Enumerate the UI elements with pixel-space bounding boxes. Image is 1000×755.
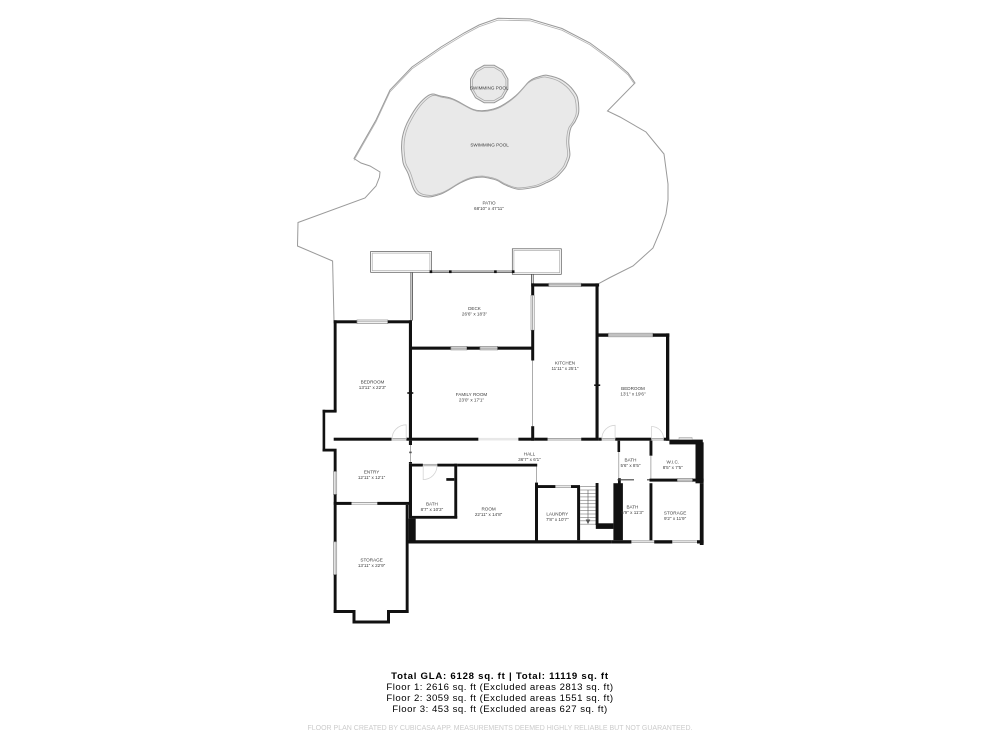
svg-text:SWIMMING POOL: SWIMMING POOL [470,86,509,91]
svg-text:13'11" x 22'3": 13'11" x 22'3" [359,385,387,390]
svg-text:FAMILY ROOM: FAMILY ROOM [456,392,488,397]
svg-text:22'11" x 14'8": 22'11" x 14'8" [475,512,503,517]
svg-text:DECK: DECK [468,306,482,311]
svg-text:SWIMMING POOL: SWIMMING POOL [470,143,509,148]
svg-text:HALL: HALL [524,452,536,457]
svg-text:BEDROOM: BEDROOM [361,380,385,385]
svg-text:STORAGE: STORAGE [360,558,382,563]
svg-text:8'7" x 10'3": 8'7" x 10'3" [421,507,444,512]
svg-text:26'6" x 18'3": 26'6" x 18'3" [462,312,488,317]
svg-text:7'8" x 10'7": 7'8" x 10'7" [546,517,569,522]
svg-text:9'2" x 11'9": 9'2" x 11'9" [664,516,687,521]
svg-text:68'10" x 47'11": 68'10" x 47'11" [474,206,504,211]
svg-text:KITCHEN: KITCHEN [555,361,575,366]
svg-text:W.I.C.: W.I.C. [667,460,680,465]
svg-text:11'11" x 25'1": 11'11" x 25'1" [551,366,578,371]
svg-text:BATH: BATH [626,505,638,510]
svg-text:5'6" x 8'5": 5'6" x 8'5" [620,463,640,468]
svg-text:BATH: BATH [625,458,637,463]
svg-text:36'7" x 6'1": 36'7" x 6'1" [518,457,541,462]
svg-text:12'11" x 12'1": 12'11" x 12'1" [358,475,386,480]
svg-text:13'11" x 22'9": 13'11" x 22'9" [358,563,386,568]
svg-text:13'1" x 19'6": 13'1" x 19'6" [620,392,646,397]
svg-text:8'5" x 7'5": 8'5" x 7'5" [663,465,683,470]
svg-text:LAUNDRY: LAUNDRY [546,512,568,517]
svg-text:PATIO: PATIO [482,201,496,206]
svg-text:BEDROOM: BEDROOM [621,386,645,391]
svg-text:ROOM: ROOM [481,507,495,512]
svg-text:ENTRY: ENTRY [364,470,380,475]
svg-text:BATH: BATH [426,502,438,507]
svg-text:23'0" x 17'1": 23'0" x 17'1" [459,398,485,403]
svg-text:STORAGE: STORAGE [664,511,686,516]
svg-text:5'9" x 11'3": 5'9" x 11'3" [621,510,644,515]
